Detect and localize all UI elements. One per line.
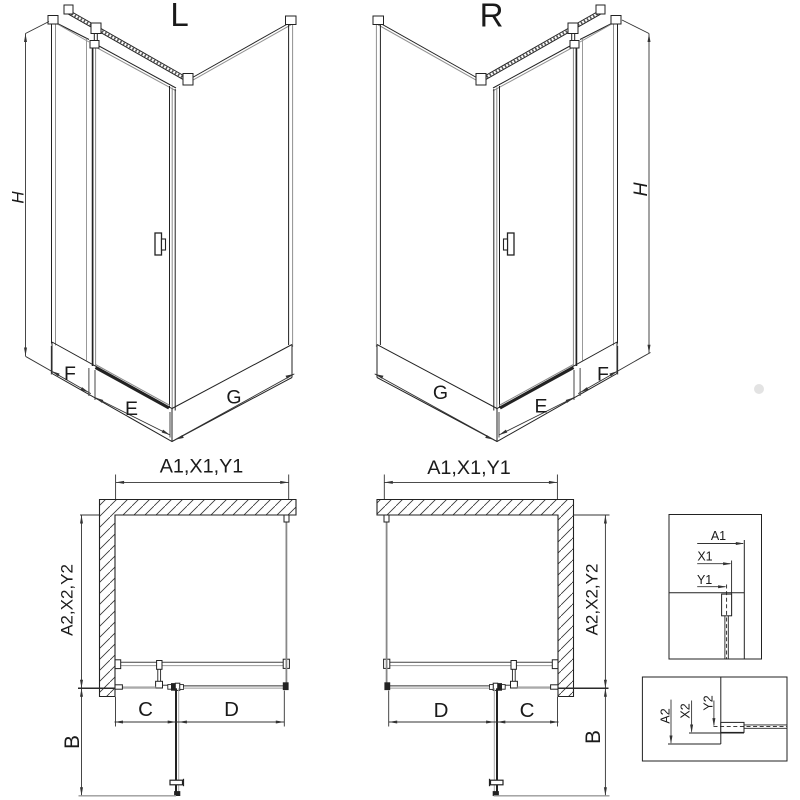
svg-text:E: E [534, 396, 547, 418]
svg-text:H: H [630, 182, 652, 197]
svg-text:F: F [64, 363, 76, 385]
svg-text:A1,X1,Y1: A1,X1,Y1 [160, 456, 244, 478]
svg-text:B: B [582, 730, 605, 744]
svg-text:F: F [597, 364, 609, 386]
svg-text:L: L [170, 0, 188, 33]
svg-text:Y1: Y1 [697, 573, 712, 587]
svg-text:D: D [434, 699, 449, 722]
svg-text:C: C [138, 698, 153, 721]
svg-text:G: G [433, 382, 448, 404]
svg-text:Y2: Y2 [702, 695, 716, 710]
svg-text:X1: X1 [697, 550, 712, 564]
svg-text:H: H [9, 191, 28, 204]
svg-text:C: C [520, 699, 535, 722]
svg-text:A1,X1,Y1: A1,X1,Y1 [427, 457, 511, 479]
svg-text:R: R [480, 0, 504, 34]
svg-text:A2,X2,Y2: A2,X2,Y2 [58, 564, 77, 636]
svg-text:B: B [61, 735, 84, 749]
svg-text:X2: X2 [679, 703, 693, 718]
svg-text:D: D [224, 698, 239, 721]
svg-text:E: E [125, 398, 138, 420]
svg-text:A1: A1 [711, 529, 726, 543]
svg-text:A2: A2 [659, 708, 673, 723]
svg-text:A2,X2,Y2: A2,X2,Y2 [583, 564, 602, 636]
svg-text:G: G [226, 387, 241, 409]
